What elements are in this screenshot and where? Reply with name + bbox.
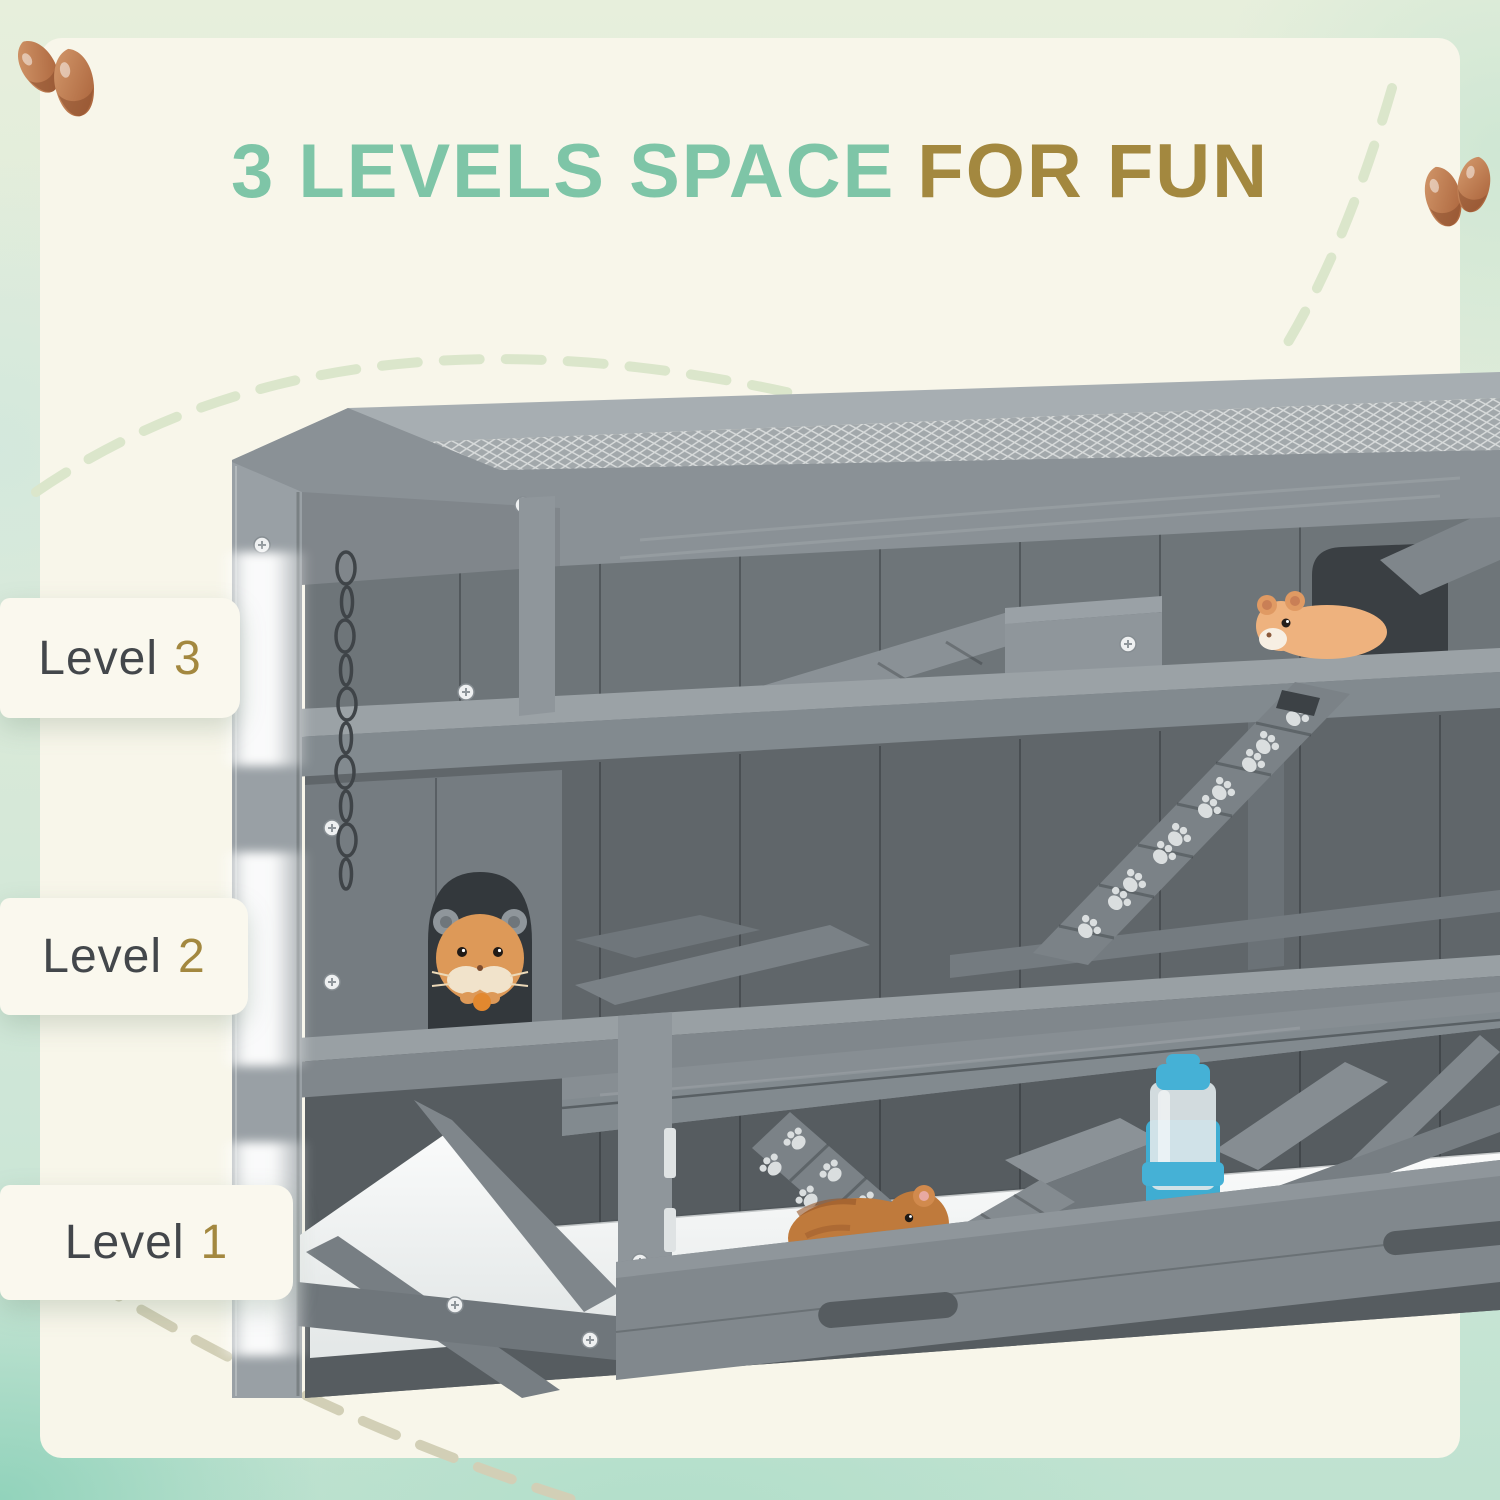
level-number: 2 [178, 929, 206, 984]
page-title: 3 LEVELS SPACEFOR FUN [0, 128, 1500, 215]
level-number: 1 [201, 1215, 229, 1270]
title-rest: FOR FUN [917, 129, 1269, 214]
level-label: Level [42, 929, 162, 984]
level-label: Level [65, 1215, 185, 1270]
level-number: 3 [174, 631, 202, 686]
level-3-callout: Level 3 [0, 598, 240, 718]
level-1-callout: Level 1 [0, 1185, 293, 1300]
feature-image: 3 LEVELS SPACEFOR FUN Level 3 Level 2 Le… [0, 0, 1500, 1500]
level-label: Level [38, 631, 158, 686]
title-highlight: 3 LEVELS SPACE [231, 129, 895, 214]
level-2-callout: Level 2 [0, 898, 248, 1015]
